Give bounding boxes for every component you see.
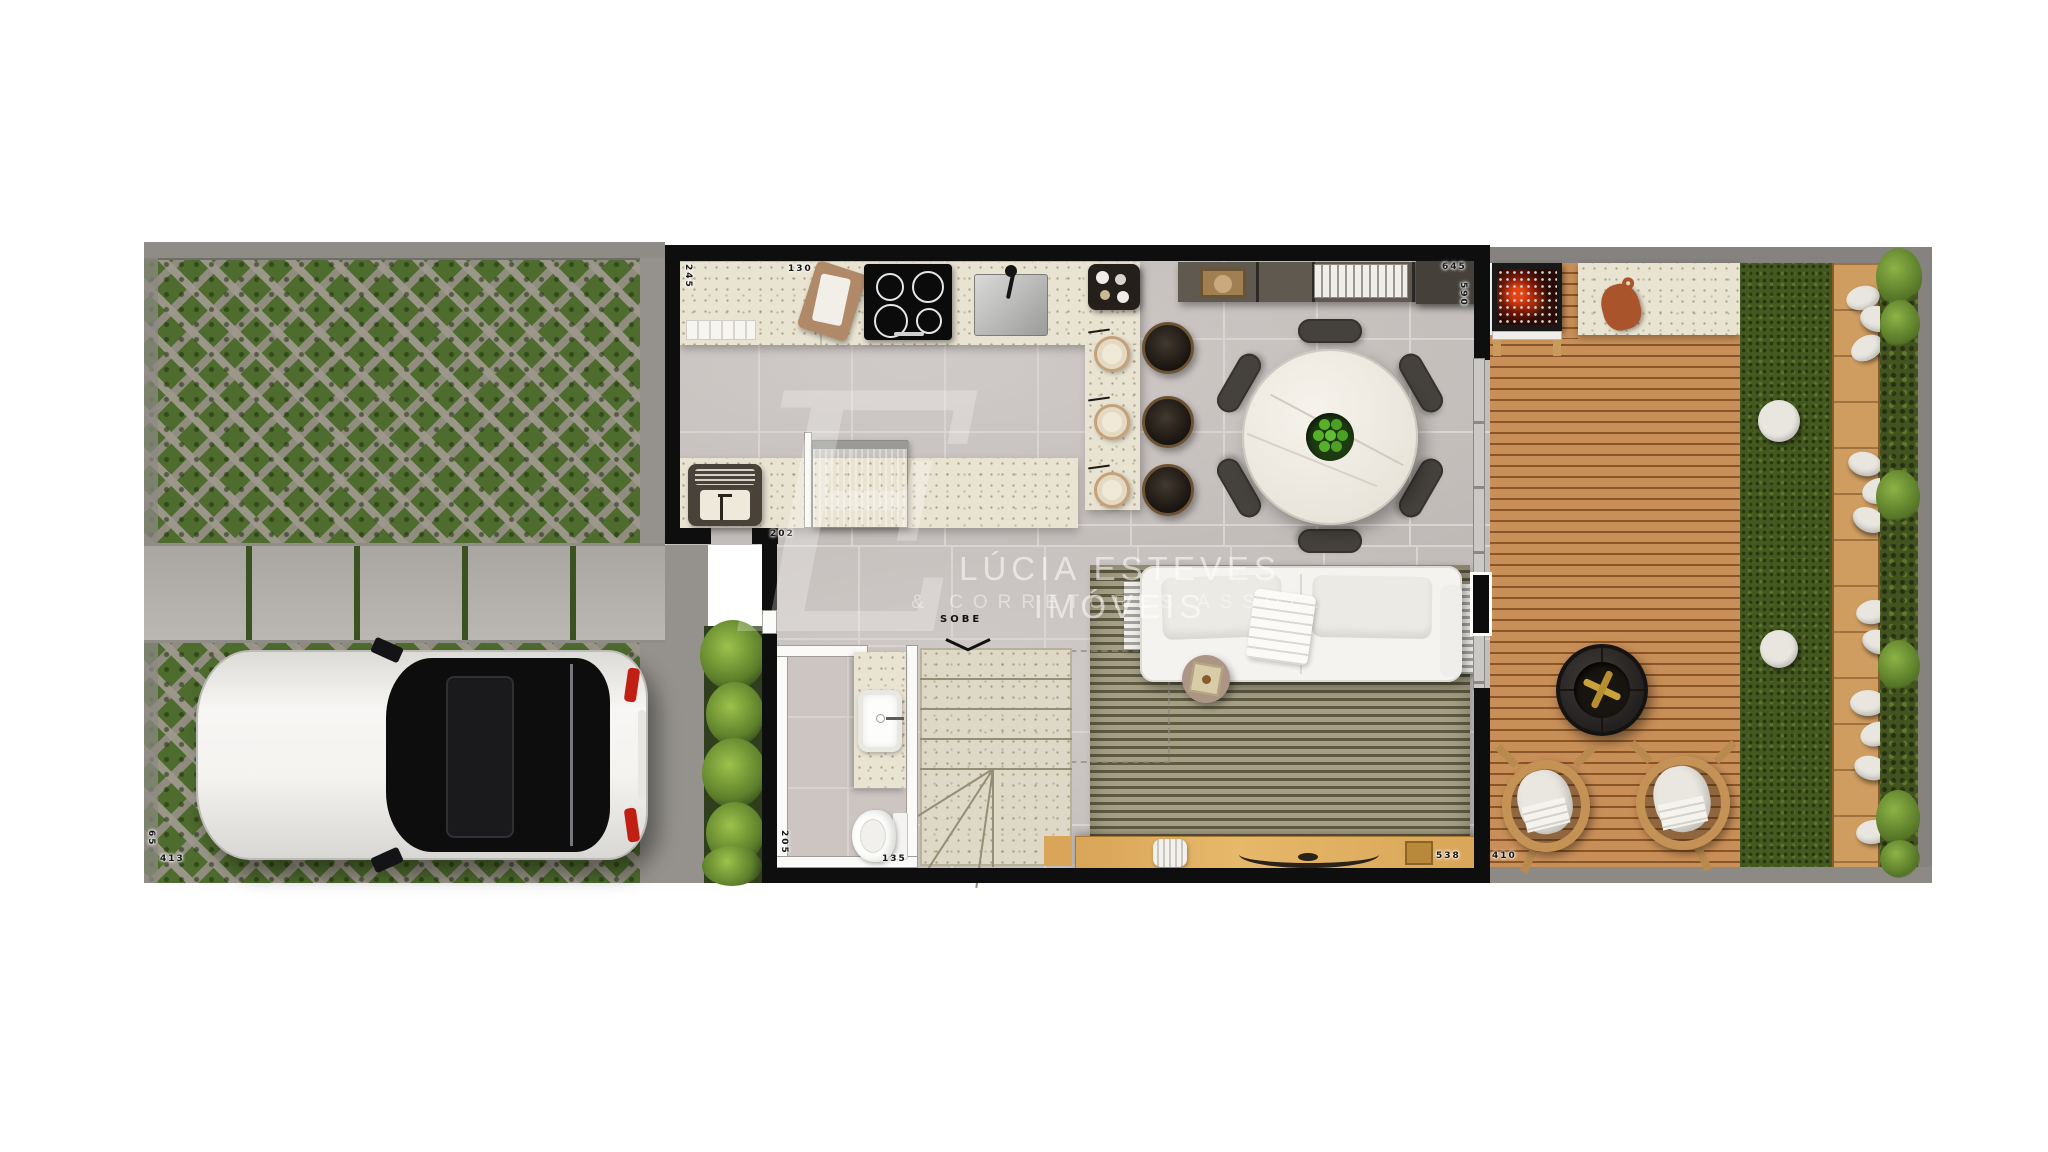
dim-bathroom-width: 135 <box>882 854 907 864</box>
shrub <box>1878 640 1920 692</box>
staircase <box>920 648 1072 866</box>
shrub <box>1876 790 1920 846</box>
shrub <box>1876 248 1922 306</box>
deck-wall-right <box>1916 247 1932 883</box>
ribbed-vase <box>1153 839 1187 867</box>
laundry-sink-unit <box>688 464 762 526</box>
stairs-direction-chevron <box>946 636 990 652</box>
parked-car <box>196 650 648 860</box>
wall-right-top <box>1474 245 1490 360</box>
coffee-station <box>1088 264 1140 310</box>
bar-stool <box>1142 464 1194 516</box>
deck-wall-top <box>1490 247 1932 263</box>
entry-planter <box>704 626 764 883</box>
dim-driveway-length: 413 <box>160 854 185 864</box>
place-setting <box>1094 472 1130 508</box>
tv-console <box>1075 836 1478 870</box>
grill-post <box>1553 340 1561 356</box>
shrub <box>1880 840 1920 878</box>
dim-dining-height: 590 <box>1458 282 1468 307</box>
dim-sideboard-run: 645 <box>1442 262 1467 272</box>
bar-stool <box>1142 396 1194 448</box>
shrub <box>1880 300 1920 348</box>
wall-front-a <box>665 528 711 544</box>
laundry-partition <box>804 432 812 528</box>
fire-pit-table <box>1556 644 1648 736</box>
grill-post <box>1493 340 1501 356</box>
entry-walkway <box>144 543 665 643</box>
washing-machine <box>812 440 908 528</box>
sofa-arm-pad <box>1440 585 1462 677</box>
books-row <box>1314 264 1408 298</box>
washbasin <box>858 690 902 752</box>
sofa-back-cushion <box>1311 575 1432 639</box>
decor-box <box>1405 841 1433 865</box>
dim-counter-depth: 245 <box>683 264 693 289</box>
dim-service-opening: 202 <box>770 529 795 539</box>
entry-door-leaf <box>762 610 777 634</box>
fruit-bowl <box>1306 413 1354 461</box>
sliding-glass-door <box>1473 358 1485 690</box>
stair-landing-wood <box>1044 836 1072 866</box>
coffee-table <box>1182 655 1230 703</box>
grill-shelf <box>1492 331 1562 340</box>
wall-bathroom-left <box>762 543 777 883</box>
deck-wall-bottom <box>1490 867 1932 883</box>
dim-counter-left: 130 <box>788 264 813 274</box>
barbecue-grill <box>1492 263 1562 331</box>
dim-bathroom-depth: 205 <box>779 830 789 855</box>
basin-faucet <box>886 717 904 720</box>
place-setting <box>1094 404 1130 440</box>
lounge-chair <box>1636 756 1730 850</box>
decor-tray <box>1200 268 1246 298</box>
deck-gap <box>1562 263 1578 339</box>
curb-top <box>144 242 665 260</box>
throw-blanket <box>1245 588 1316 666</box>
place-setting <box>1094 336 1130 372</box>
dining-chair <box>1298 319 1362 343</box>
stepping-stone <box>1760 630 1798 668</box>
dim-driveway-edge: 65 <box>146 830 156 847</box>
dim-living-width: 538 <box>1436 851 1461 861</box>
car-trunk-edge <box>638 710 646 800</box>
hedge-row <box>1880 263 1918 867</box>
dining-chair <box>1298 529 1362 553</box>
stairs-direction-label: SOBE <box>940 614 982 625</box>
wall-bottom <box>762 868 1490 883</box>
dish-towel <box>686 320 756 340</box>
wall-mounted-unit <box>1470 572 1492 636</box>
lawn-strip <box>1740 263 1832 867</box>
floor-plan-rendering: 65 413 <box>0 0 2048 1152</box>
dim-deck-width: 410 <box>1492 851 1517 861</box>
wall-top <box>665 245 1490 261</box>
kitchen-sink <box>974 274 1048 336</box>
car-rear-pillar <box>570 664 573 846</box>
cooktop <box>864 264 952 340</box>
bar-stool <box>1142 322 1194 374</box>
wall-left-upper <box>665 245 680 543</box>
car-sunroof <box>446 676 514 838</box>
lounge-chair <box>1502 760 1590 852</box>
wall-right-bottom <box>1474 688 1490 883</box>
shrub <box>1876 470 1920 524</box>
stepping-stone <box>1758 400 1800 442</box>
